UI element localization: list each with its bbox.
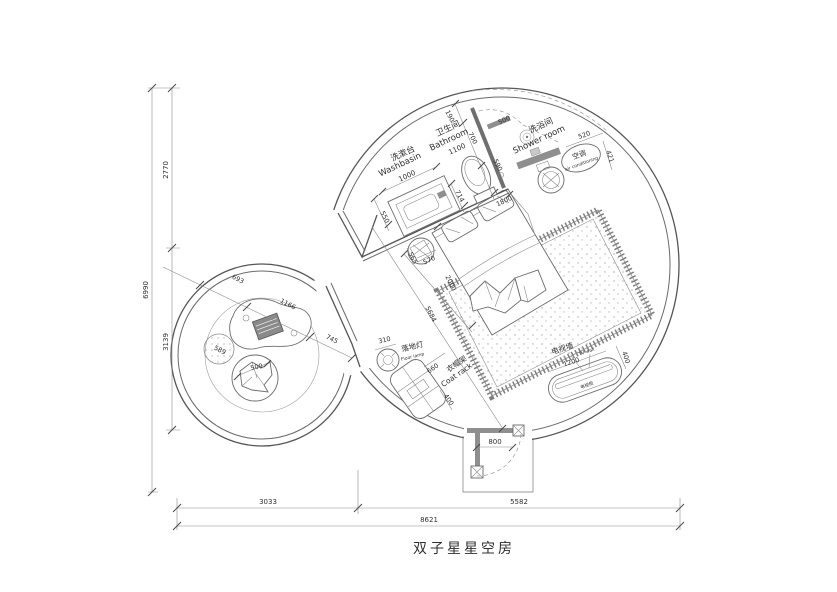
lounge-dim-693: 693 (231, 273, 246, 286)
left-dim-extensions (148, 88, 180, 492)
bathroom-dim-700: 700 (466, 131, 479, 146)
drawing-title: 双子星星空房 (413, 541, 515, 557)
washbasin-dim-1000: 1000 (397, 169, 417, 184)
left-dimensions: 6990 2770 3139 (142, 84, 180, 496)
corridor-upper-wall-inner (343, 211, 365, 251)
floor-plan-drawing: 空调 air conditioning 电视柜 (0, 0, 837, 592)
dim-width-right: 5582 (510, 498, 528, 506)
door-threshold (467, 428, 513, 433)
left-dim-lines (152, 88, 172, 492)
washbasin-dim-550: 550 (378, 210, 391, 225)
cushion-chair (232, 355, 278, 401)
dim-width-total: 8621 (420, 516, 438, 524)
floor-lamp (377, 349, 399, 371)
ac-dim-520: 520 (577, 129, 591, 141)
door-dim-800: 800 (488, 438, 501, 446)
lamp-label-zh: 落地灯 (400, 338, 425, 353)
dim-total-height: 6990 (142, 281, 150, 299)
lamp-dim-310: 310 (378, 335, 392, 346)
tv-dim-400: 400 (620, 350, 631, 364)
door-leaf (475, 432, 480, 468)
rack-dim-400: 400 (442, 392, 456, 407)
air-conditioner: 空调 air conditioning (558, 139, 604, 177)
rack-dim-660: 660 (425, 362, 440, 376)
bathroom-dim-590: 590 (491, 158, 504, 173)
shower-dim-500: 500 (497, 114, 512, 127)
dim-height-bottom: 3139 (162, 333, 170, 351)
dim-width-left: 3033 (259, 498, 277, 506)
bed-dim-5684: 5684 (423, 305, 438, 323)
bottom-dimensions: 3033 5582 8621 (173, 470, 684, 530)
bedside-table-right (536, 161, 564, 193)
ac-dim-421: 421 (604, 149, 615, 163)
dim-height-top: 2770 (162, 161, 170, 179)
shower-head-center (526, 136, 528, 138)
floor-plan-page: 空调 air conditioning 电视柜 (0, 0, 837, 592)
